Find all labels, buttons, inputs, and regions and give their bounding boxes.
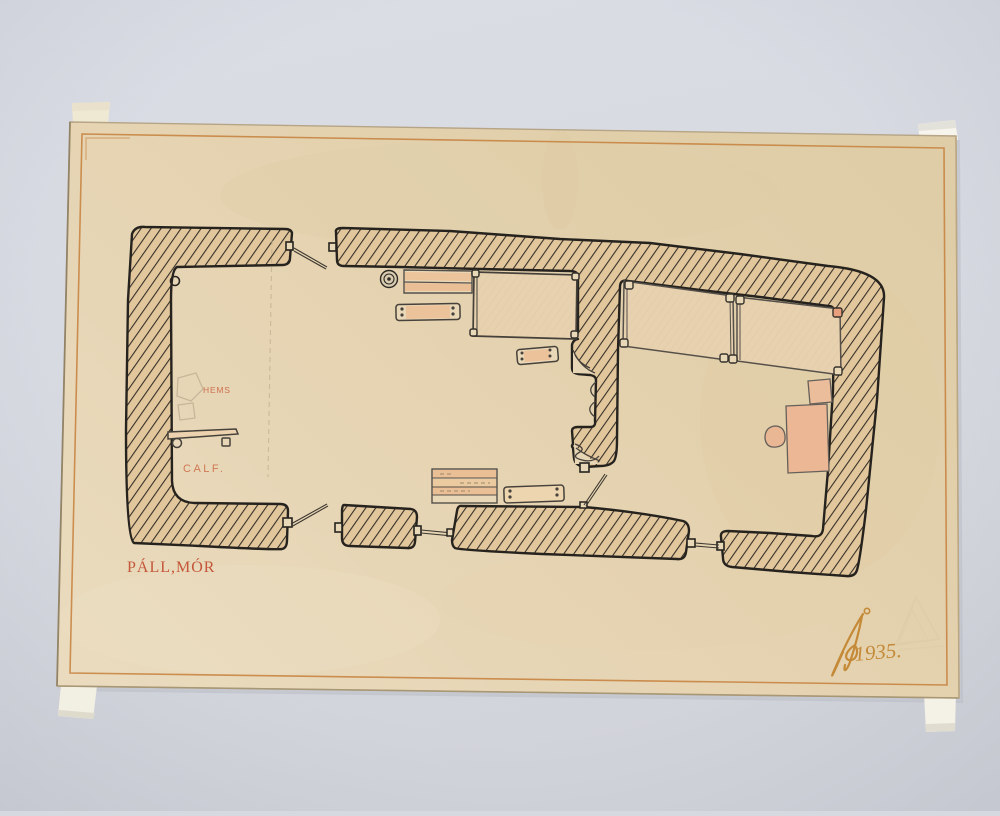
svg-text:1935.: 1935. [853,638,902,666]
svg-text:CALF.: CALF. [183,463,225,475]
svg-text:PÁLL,MÓR: PÁLL,MÓR [127,557,215,576]
svg-text:HEMS: HEMS [203,385,231,395]
